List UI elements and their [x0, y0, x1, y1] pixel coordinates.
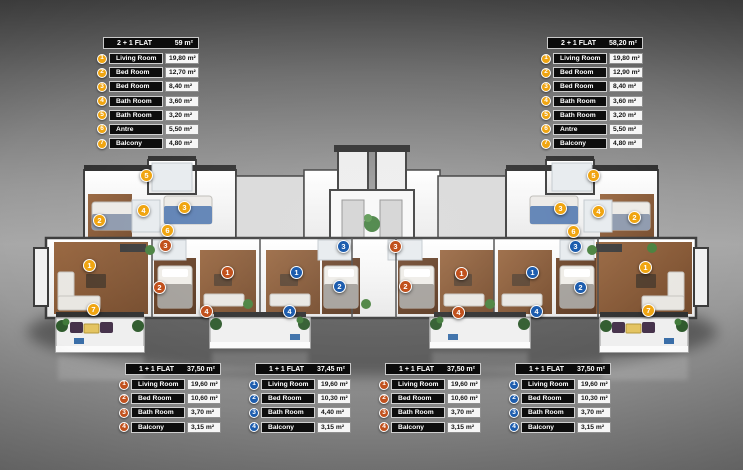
room-number-badge: 6: [97, 124, 107, 134]
room-number-badge: 4: [379, 422, 389, 432]
flat-type-label: 1 + 1 FLAT: [399, 366, 434, 373]
flat-table-header: 2 + 1 FLAT 58,20 m²: [547, 37, 643, 49]
plan-marker-flat-2plus1-left-room-2: 2: [93, 214, 106, 227]
flat-total-area: 58,20 m²: [609, 40, 637, 47]
legend-table-1plus1-b: 1 + 1 FLAT 37,45 m² 1Living Room19,60 m²…: [249, 363, 351, 436]
room-label: Balcony: [261, 422, 315, 433]
room-area-value: 3,20 m²: [165, 110, 199, 121]
room-area-value: 19,60 m²: [577, 379, 611, 390]
room-number-badge: 2: [119, 394, 129, 404]
room-label: Bed Room: [521, 393, 575, 404]
room-row: 3Bath Room3,70 m²: [509, 407, 611, 418]
room-number-badge: 2: [379, 394, 389, 404]
room-area-value: 3,20 m²: [609, 110, 643, 121]
room-row: 7Balcony4,80 m²: [541, 138, 643, 149]
room-number-badge: 6: [541, 124, 551, 134]
plan-marker-flat-1plus1-c-room-1: 1: [455, 267, 468, 280]
room-area-value: 3,60 m²: [609, 96, 643, 107]
flat-total-area: 37,50 m²: [447, 366, 475, 373]
flat-type-label: 2 + 1 FLAT: [117, 40, 152, 47]
room-number-badge: 4: [119, 422, 129, 432]
plan-marker-flat-2plus1-left-room-7: 7: [87, 303, 100, 316]
plan-marker-flat-1plus1-a-room-4: 4: [200, 305, 213, 318]
plan-marker-flat-2plus1-left-room-3: 3: [178, 201, 191, 214]
room-area-value: 5,50 m²: [609, 124, 643, 135]
flat-table-header: 1 + 1 FLAT 37,45 m²: [255, 363, 351, 375]
room-label: Bed Room: [261, 393, 315, 404]
flat-table-rows: 1Living Room19,80 m²2Bed Room12,70 m²3Be…: [97, 53, 199, 149]
room-label: Living Room: [261, 379, 315, 390]
plan-marker-flat-2plus1-right-room-6: 6: [567, 225, 580, 238]
legend-table-1plus1-d: 1 + 1 FLAT 37,50 m² 1Living Room19,60 m²…: [509, 363, 611, 436]
plan-marker-flat-2plus1-left-room-1: 1: [83, 259, 96, 272]
room-number-badge: 3: [541, 82, 551, 92]
room-area-value: 19,80 m²: [165, 53, 199, 64]
room-area-value: 3,70 m²: [447, 407, 481, 418]
plan-marker-flat-2plus1-left-room-6: 6: [161, 224, 174, 237]
room-label: Bath Room: [553, 96, 607, 107]
legend-table-2plus1-left: 2 + 1 FLAT 59 m² 1Living Room19,80 m²2Be…: [97, 37, 199, 152]
room-row: 5Bath Room3,20 m²: [541, 110, 643, 121]
room-area-value: 12,70 m²: [165, 67, 199, 78]
room-area-value: 4,80 m²: [165, 138, 199, 149]
room-row: 2Bed Room12,90 m²: [541, 67, 643, 78]
room-label: Bath Room: [131, 407, 185, 418]
room-row: 4Bath Room3,60 m²: [97, 96, 199, 107]
legend-table-1plus1-c: 1 + 1 FLAT 37,50 m² 1Living Room19,60 m²…: [379, 363, 481, 436]
room-area-value: 10,60 m²: [447, 393, 481, 404]
room-label: Bath Room: [521, 407, 575, 418]
room-label: Living Room: [553, 53, 607, 64]
room-number-badge: 3: [249, 408, 259, 418]
room-area-value: 3,15 m²: [187, 422, 221, 433]
room-area-value: 10,30 m²: [317, 393, 351, 404]
room-row: 3Bed Room8,40 m²: [541, 81, 643, 92]
flat-total-area: 37,50 m²: [577, 366, 605, 373]
room-number-badge: 2: [249, 394, 259, 404]
flat-table-rows: 1Living Room19,80 m²2Bed Room12,90 m²3Be…: [541, 53, 643, 149]
room-area-value: 3,15 m²: [577, 422, 611, 433]
room-number-badge: 7: [541, 139, 551, 149]
plan-marker-flat-1plus1-b-room-4: 4: [283, 305, 296, 318]
floor-plan-page: { "colors": { "yellow": "#f0a511", "oran…: [0, 0, 743, 470]
room-label: Bath Room: [109, 96, 163, 107]
room-label: Living Room: [521, 379, 575, 390]
plan-marker-flat-1plus1-b-room-3: 3: [337, 240, 350, 253]
plan-marker-flat-2plus1-left-room-4: 4: [137, 204, 150, 217]
plan-marker-flat-1plus1-c-room-4: 4: [452, 306, 465, 319]
room-row: 1Living Room19,60 m²: [119, 379, 221, 390]
plan-marker-flat-2plus1-right-room-1: 1: [639, 261, 652, 274]
room-number-badge: 4: [541, 96, 551, 106]
room-number-badge: 1: [509, 380, 519, 390]
room-area-value: 8,40 m²: [165, 81, 199, 92]
room-label: Living Room: [391, 379, 445, 390]
room-area-value: 10,60 m²: [187, 393, 221, 404]
flat-table-header: 2 + 1 FLAT 59 m²: [103, 37, 199, 49]
room-area-value: 4,40 m²: [317, 407, 351, 418]
room-number-badge: 4: [509, 422, 519, 432]
room-label: Bed Room: [553, 67, 607, 78]
room-number-badge: 3: [509, 408, 519, 418]
room-row: 1Living Room19,60 m²: [249, 379, 351, 390]
room-label: Bath Room: [109, 110, 163, 121]
room-number-badge: 1: [249, 380, 259, 390]
room-row: 2Bed Room10,30 m²: [249, 393, 351, 404]
room-label: Balcony: [391, 422, 445, 433]
room-row: 3Bed Room8,40 m²: [97, 81, 199, 92]
room-number-badge: 4: [97, 96, 107, 106]
room-row: 2Bed Room10,60 m²: [119, 393, 221, 404]
flat-total-area: 59 m²: [175, 40, 193, 47]
room-row: 4Balcony3,15 m²: [119, 422, 221, 433]
plan-marker-flat-2plus1-right-room-2: 2: [628, 211, 641, 224]
flat-total-area: 37,50 m²: [187, 366, 215, 373]
room-row: 5Bath Room3,20 m²: [97, 110, 199, 121]
plan-marker-flat-1plus1-d-room-2: 2: [574, 281, 587, 294]
room-row: 6Antre5,50 m²: [97, 124, 199, 135]
flat-table-header: 1 + 1 FLAT 37,50 m²: [515, 363, 611, 375]
room-row: 1Living Room19,60 m²: [379, 379, 481, 390]
room-area-value: 19,60 m²: [187, 379, 221, 390]
room-number-badge: 3: [119, 408, 129, 418]
room-label: Antre: [109, 124, 163, 135]
room-row: 6Antre5,50 m²: [541, 124, 643, 135]
room-label: Living Room: [109, 53, 163, 64]
plan-marker-flat-1plus1-b-room-1: 1: [290, 266, 303, 279]
room-area-value: 3,70 m²: [577, 407, 611, 418]
room-row: 7Balcony4,80 m²: [97, 138, 199, 149]
room-label: Antre: [553, 124, 607, 135]
room-area-value: 10,30 m²: [577, 393, 611, 404]
plan-marker-flat-2plus1-right-room-5: 5: [587, 169, 600, 182]
room-row: 4Balcony3,15 m²: [249, 422, 351, 433]
room-area-value: 3,60 m²: [165, 96, 199, 107]
room-row: 4Bath Room3,60 m²: [541, 96, 643, 107]
room-row: 2Bed Room10,30 m²: [509, 393, 611, 404]
room-area-value: 19,60 m²: [447, 379, 481, 390]
flat-table-rows: 1Living Room19,60 m²2Bed Room10,30 m²3Ba…: [509, 379, 611, 433]
room-row: 1Living Room19,80 m²: [97, 53, 199, 64]
room-number-badge: 1: [119, 380, 129, 390]
room-number-badge: 5: [541, 110, 551, 120]
plan-marker-flat-1plus1-d-room-4: 4: [530, 305, 543, 318]
plan-marker-flat-1plus1-c-room-2: 2: [399, 280, 412, 293]
plan-marker-flat-2plus1-right-room-3: 3: [554, 202, 567, 215]
room-row: 3Bath Room3,70 m²: [119, 407, 221, 418]
room-area-value: 3,70 m²: [187, 407, 221, 418]
room-label: Balcony: [553, 138, 607, 149]
room-label: Bed Room: [391, 393, 445, 404]
room-label: Bed Room: [553, 81, 607, 92]
room-number-badge: 2: [509, 394, 519, 404]
room-area-value: 3,15 m²: [317, 422, 351, 433]
room-label: Balcony: [521, 422, 575, 433]
room-number-badge: 2: [541, 68, 551, 78]
room-area-value: 19,60 m²: [317, 379, 351, 390]
room-number-badge: 1: [541, 54, 551, 64]
flat-type-label: 2 + 1 FLAT: [561, 40, 596, 47]
room-label: Bed Room: [131, 393, 185, 404]
room-row: 3Bath Room4,40 m²: [249, 407, 351, 418]
room-area-value: 4,80 m²: [609, 138, 643, 149]
room-row: 1Living Room19,60 m²: [509, 379, 611, 390]
room-row: 4Balcony3,15 m²: [509, 422, 611, 433]
plan-marker-flat-1plus1-d-room-1: 1: [526, 266, 539, 279]
room-label: Bath Room: [391, 407, 445, 418]
room-number-badge: 1: [379, 380, 389, 390]
flat-table-rows: 1Living Room19,60 m²2Bed Room10,60 m²3Ba…: [119, 379, 221, 433]
room-row: 2Bed Room12,70 m²: [97, 67, 199, 78]
room-label: Bed Room: [109, 81, 163, 92]
room-area-value: 8,40 m²: [609, 81, 643, 92]
plan-marker-flat-1plus1-b-room-2: 2: [333, 280, 346, 293]
room-label: Bed Room: [109, 67, 163, 78]
room-row: 3Bath Room3,70 m²: [379, 407, 481, 418]
plan-marker-flat-1plus1-a-room-2: 2: [153, 281, 166, 294]
room-number-badge: 7: [97, 139, 107, 149]
room-label: Balcony: [109, 138, 163, 149]
room-label: Bath Room: [553, 110, 607, 121]
flat-table-rows: 1Living Room19,60 m²2Bed Room10,30 m²3Ba…: [249, 379, 351, 433]
room-row: 2Bed Room10,60 m²: [379, 393, 481, 404]
legend-table-2plus1-right: 2 + 1 FLAT 58,20 m² 1Living Room19,80 m²…: [541, 37, 643, 152]
flat-type-label: 1 + 1 FLAT: [139, 366, 174, 373]
room-area-value: 5,50 m²: [165, 124, 199, 135]
room-row: 1Living Room19,80 m²: [541, 53, 643, 64]
legend-table-1plus1-a: 1 + 1 FLAT 37,50 m² 1Living Room19,60 m²…: [119, 363, 221, 436]
plan-marker-flat-1plus1-d-room-3: 3: [569, 240, 582, 253]
flat-type-label: 1 + 1 FLAT: [529, 366, 564, 373]
room-number-badge: 1: [97, 54, 107, 64]
plan-marker-flat-2plus1-right-room-4: 4: [592, 205, 605, 218]
room-number-badge: 3: [379, 408, 389, 418]
room-area-value: 19,80 m²: [609, 53, 643, 64]
room-row: 4Balcony3,15 m²: [379, 422, 481, 433]
plan-marker-flat-2plus1-right-room-7: 7: [642, 304, 655, 317]
plan-marker-flat-1plus1-c-room-3: 3: [389, 240, 402, 253]
room-number-badge: 3: [97, 82, 107, 92]
plan-marker-flat-1plus1-a-room-3: 3: [159, 239, 172, 252]
room-number-badge: 5: [97, 110, 107, 120]
flat-table-header: 1 + 1 FLAT 37,50 m²: [385, 363, 481, 375]
room-label: Balcony: [131, 422, 185, 433]
room-number-badge: 4: [249, 422, 259, 432]
room-label: Bath Room: [261, 407, 315, 418]
plan-marker-flat-1plus1-a-room-1: 1: [221, 266, 234, 279]
room-area-value: 3,15 m²: [447, 422, 481, 433]
room-area-value: 12,90 m²: [609, 67, 643, 78]
room-number-badge: 2: [97, 68, 107, 78]
flat-table-header: 1 + 1 FLAT 37,50 m²: [125, 363, 221, 375]
flat-type-label: 1 + 1 FLAT: [269, 366, 304, 373]
plan-marker-flat-2plus1-left-room-5: 5: [140, 169, 153, 182]
room-label: Living Room: [131, 379, 185, 390]
flat-table-rows: 1Living Room19,60 m²2Bed Room10,60 m²3Ba…: [379, 379, 481, 433]
flat-total-area: 37,45 m²: [317, 366, 345, 373]
